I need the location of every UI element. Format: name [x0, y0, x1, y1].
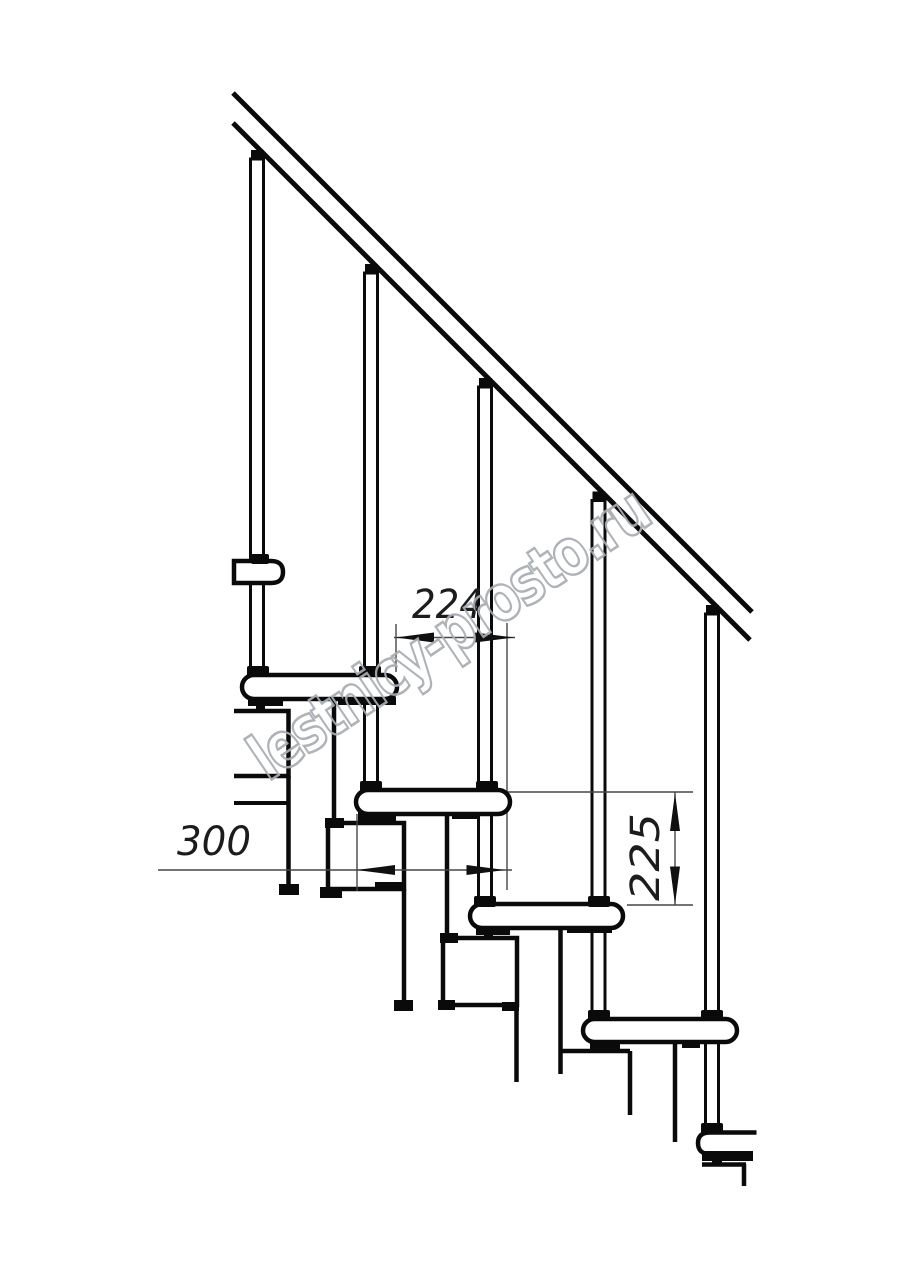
baluster-collar [476, 781, 498, 792]
dim-arrow-down [670, 867, 680, 905]
wedge-notch [712, 1160, 722, 1164]
under-tread-wedge [452, 812, 478, 819]
tread-2 [356, 790, 510, 814]
module-joint-mark [438, 1000, 455, 1010]
wedge-notch [484, 934, 493, 938]
under-tread-wedge [567, 926, 612, 933]
under-tread-wedge [476, 926, 510, 935]
staircase-drawing-svg: 224300225lestnicy-prosto.ru [0, 0, 914, 1280]
module-box-2 [328, 823, 404, 889]
module-joint-mark [279, 884, 299, 895]
module-joint-mark [320, 887, 342, 898]
module-joint-mark [502, 1002, 519, 1011]
baluster-collar [588, 1010, 610, 1021]
under-tread-wedge [590, 1041, 620, 1050]
under-tread-wedge [682, 1041, 700, 1048]
baluster-collar [588, 896, 610, 907]
baluster-5 [706, 614, 719, 1132]
baluster-collar [701, 1010, 723, 1021]
under-tread-wedge [702, 1151, 753, 1161]
tread-5-cut [698, 1133, 757, 1155]
baluster-collar [474, 896, 496, 907]
module-box-3 [443, 938, 517, 1005]
dim-label-300: 300 [177, 819, 251, 865]
dim-arrow-up [670, 793, 680, 831]
wedge-notch [366, 820, 375, 824]
tread-4 [583, 1019, 737, 1042]
under-tread-wedge [358, 812, 396, 821]
baluster-collar [360, 781, 382, 792]
dim-label-225: 225 [623, 813, 669, 901]
tread-3 [470, 904, 623, 928]
module-joint-mark [325, 818, 344, 828]
treads [234, 561, 757, 1154]
module-joint-mark [394, 1000, 413, 1011]
staircase-technical-drawing: 224300225lestnicy-prosto.ru [0, 0, 914, 1284]
tread-0-cut [234, 561, 283, 583]
module-joint-mark [375, 882, 405, 891]
module-joint-mark [440, 933, 458, 943]
baluster-collar [251, 554, 269, 564]
wedge-notch [256, 705, 265, 709]
baluster-collar [247, 666, 269, 677]
baluster-1 [251, 159, 264, 675]
wedge-notch [598, 1049, 607, 1053]
baluster-collar [701, 1123, 723, 1134]
